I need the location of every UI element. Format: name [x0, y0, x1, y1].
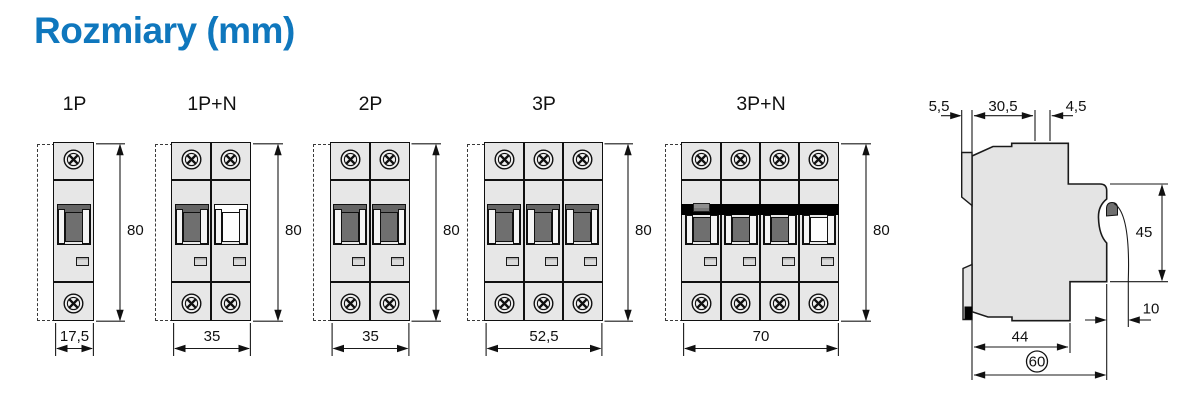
- dashed-extension-outline: [155, 144, 173, 322]
- dim-rail-offset: 5,5: [929, 98, 950, 115]
- width-dimension-value: 52,5: [456, 328, 633, 345]
- module-divider: [759, 143, 761, 321]
- height-dimension-value: 80: [285, 222, 302, 239]
- din-rail-clip-bottom: [963, 265, 972, 320]
- housing-seam: [682, 281, 838, 282]
- status-indicator: [782, 257, 795, 266]
- screw-terminal-icon: [808, 293, 829, 314]
- housing-seam: [54, 179, 93, 180]
- dim-mounting-depth: 30,5: [988, 98, 1017, 115]
- breaker-front-1pn: [171, 142, 251, 322]
- screw-terminal-icon: [379, 149, 400, 170]
- status-indicator: [704, 257, 717, 266]
- status-indicator: [743, 257, 756, 266]
- toggle-side-bar: [359, 209, 367, 244]
- dimension-arrowhead: [862, 310, 869, 322]
- breaker-front-3p: [484, 142, 603, 322]
- dashed-extension-outline: [467, 144, 485, 322]
- toggle-handle: [534, 212, 552, 242]
- breaker-pole-module: [682, 143, 721, 321]
- dimension-arrowhead: [950, 112, 962, 119]
- screw-terminal-icon: [572, 149, 593, 170]
- dimension-arrowhead: [432, 144, 439, 156]
- page-title: Rozmiary (mm): [34, 10, 295, 52]
- dim-handle-step: 4,5: [1066, 98, 1087, 115]
- width-dimension-value: 35: [302, 328, 440, 345]
- screw-terminal-icon: [730, 293, 751, 314]
- dimension-arrowhead: [174, 345, 186, 352]
- width-dimension-value: 70: [653, 328, 869, 345]
- screw-terminal-icon: [181, 293, 202, 314]
- housing-seam: [331, 179, 409, 180]
- dimension-arrowhead: [1095, 371, 1107, 378]
- dimension-arrowhead: [974, 343, 986, 350]
- clip-latch: [965, 307, 973, 320]
- dimension-diagram: Rozmiary (mm): [0, 0, 1194, 405]
- toggle-handle: [810, 217, 828, 242]
- dimension-arrowhead: [684, 345, 696, 352]
- screw-terminal-icon: [572, 293, 593, 314]
- screw-terminal-icon: [63, 293, 84, 314]
- screw-terminal-icon: [494, 149, 515, 170]
- toggle-lever-side: [1107, 203, 1118, 217]
- housing-seam: [485, 179, 602, 180]
- dimension-arrowhead: [116, 144, 123, 156]
- dimension-arrowhead: [1057, 343, 1069, 350]
- screw-terminal-icon: [340, 149, 361, 170]
- breaker-label-2p: 2P: [311, 93, 431, 116]
- toggle-side-bar: [749, 215, 757, 244]
- din-rail-clip-top: [962, 153, 972, 206]
- breaker-pole-module: [54, 143, 93, 321]
- toggle-side-bar: [591, 209, 599, 244]
- housing-seam: [331, 281, 409, 282]
- screw-terminal-icon: [181, 149, 202, 170]
- toggle-handle: [183, 212, 201, 242]
- toggle-side-bar: [552, 209, 560, 244]
- dimension-arrowhead: [487, 345, 499, 352]
- height-dimension-value: 80: [127, 222, 144, 239]
- module-divider: [720, 143, 722, 321]
- screw-terminal-icon: [769, 293, 790, 314]
- screw-terminal-icon: [533, 293, 554, 314]
- status-indicator: [391, 257, 404, 266]
- toggle-handle: [732, 217, 750, 242]
- dimension-arrowhead: [274, 144, 281, 156]
- dimension-arrowhead: [1128, 316, 1140, 323]
- housing-seam: [54, 281, 93, 282]
- housing-seam: [485, 281, 602, 282]
- dimension-arrowhead: [432, 310, 439, 322]
- housing-seam: [682, 179, 838, 180]
- housing-seam: [172, 281, 250, 282]
- dim-front-face-height: 45: [1136, 224, 1153, 241]
- dashed-extension-outline: [665, 144, 683, 322]
- toggle-travel-arc: [1114, 204, 1129, 281]
- module-divider: [210, 143, 212, 321]
- dim-handle-protrusion: 10: [1143, 301, 1160, 318]
- toggle-handle: [380, 212, 398, 242]
- dim-total-depth: 60: [1029, 354, 1046, 371]
- status-indicator: [821, 257, 834, 266]
- toggle-side-bar: [200, 209, 208, 244]
- toggle-handle: [693, 217, 711, 242]
- dimension-arrowhead: [1052, 112, 1064, 119]
- toggle-handle: [771, 217, 789, 242]
- screw-terminal-icon: [63, 149, 84, 170]
- breaker-pole-module: [563, 143, 602, 321]
- screw-terminal-icon: [340, 293, 361, 314]
- breaker-neutral-module: [799, 143, 838, 321]
- dimension-arrowhead: [827, 345, 839, 352]
- height-dimension-value: 80: [443, 222, 460, 239]
- dimension-arrowhead: [974, 112, 986, 119]
- module-divider: [798, 143, 800, 321]
- total-depth-circle: [1027, 351, 1048, 372]
- breaker-label-1pn: 1P+N: [152, 93, 272, 116]
- dimension-arrowhead: [56, 345, 68, 352]
- screw-terminal-icon: [808, 149, 829, 170]
- screw-terminal-icon: [533, 149, 554, 170]
- status-indicator: [194, 257, 207, 266]
- dimension-arrowhead: [397, 345, 409, 352]
- screw-terminal-icon: [730, 149, 751, 170]
- module-divider: [562, 143, 564, 321]
- toggle-side-bar: [710, 215, 718, 244]
- screw-terminal-icon: [494, 293, 515, 314]
- breaker-pole-module: [485, 143, 524, 321]
- dimension-arrowhead: [862, 144, 869, 156]
- status-indicator: [584, 257, 597, 266]
- dimension-arrowhead: [1095, 316, 1107, 323]
- width-dimension-value: 17,5: [25, 328, 124, 345]
- breaker-pole-module: [721, 143, 760, 321]
- height-dimension-value: 80: [873, 222, 890, 239]
- dimension-arrowhead: [624, 310, 631, 322]
- dimension-arrowhead: [333, 345, 345, 352]
- breaker-label-1p: 1P: [15, 93, 135, 116]
- breaker-front-2p: [330, 142, 410, 322]
- breaker-label-3p: 3P: [484, 93, 604, 116]
- breaker-neutral-module: [211, 143, 250, 321]
- toggle-side-bar: [82, 209, 90, 244]
- breaker-pole-module: [524, 143, 563, 321]
- status-indicator: [506, 257, 519, 266]
- toggle-handle: [341, 212, 359, 242]
- height-dimension-value: 80: [635, 222, 652, 239]
- dimension-arrowhead: [82, 345, 94, 352]
- breaker-pole-module: [370, 143, 409, 321]
- dimension-arrowhead: [1022, 112, 1034, 119]
- breaker-pole-module: [172, 143, 211, 321]
- dimension-arrowhead: [1158, 184, 1165, 196]
- dimension-arrowhead: [624, 144, 631, 156]
- breaker-pole-module: [760, 143, 799, 321]
- toggle-side-bar: [827, 215, 835, 244]
- screw-terminal-icon: [379, 293, 400, 314]
- dashed-extension-outline: [37, 144, 55, 322]
- breaker-label-3pn: 3P+N: [701, 93, 821, 116]
- dim-base-depth: 44: [1012, 329, 1029, 346]
- status-indicator: [233, 257, 246, 266]
- dimension-arrowhead: [239, 345, 251, 352]
- screw-terminal-icon: [691, 149, 712, 170]
- screw-terminal-icon: [769, 149, 790, 170]
- dimension-arrowhead: [1158, 270, 1165, 282]
- toggle-side-bar: [239, 209, 247, 244]
- toggle-side-bar: [398, 209, 406, 244]
- breaker-pole-module: [331, 143, 370, 321]
- side-view: 5,5 30,5 4,5 45 10 44 60: [929, 98, 1168, 380]
- breaker-side-profile: [972, 143, 1107, 320]
- status-indicator: [545, 257, 558, 266]
- toggle-handle: [495, 212, 513, 242]
- dimension-arrowhead: [274, 310, 281, 322]
- dimension-arrowhead: [590, 345, 602, 352]
- module-divider: [369, 143, 371, 321]
- status-indicator: [352, 257, 365, 266]
- width-dimension-value: 35: [143, 328, 281, 345]
- breaker-front-3pn: [681, 142, 839, 322]
- screw-terminal-icon: [691, 293, 712, 314]
- handle-tie-clip: [693, 203, 710, 213]
- dimension-arrowhead: [974, 371, 986, 378]
- toggle-handle: [573, 212, 591, 242]
- housing-seam: [172, 179, 250, 180]
- status-indicator: [76, 257, 89, 266]
- toggle-side-bar: [788, 215, 796, 244]
- toggle-handle: [65, 212, 83, 242]
- toggle-side-bar: [513, 209, 521, 244]
- breaker-front-1p: [53, 142, 94, 322]
- screw-terminal-icon: [220, 293, 241, 314]
- dashed-extension-outline: [313, 144, 331, 322]
- module-divider: [523, 143, 525, 321]
- dimension-arrowhead: [116, 310, 123, 322]
- screw-terminal-icon: [220, 149, 241, 170]
- toggle-handle: [222, 212, 240, 242]
